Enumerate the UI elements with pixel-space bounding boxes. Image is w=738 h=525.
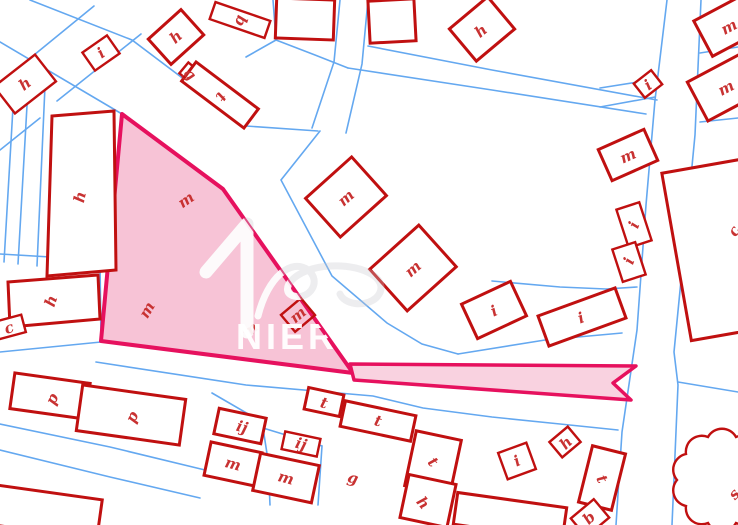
parcel-boundary-line: [0, 342, 101, 352]
parcel-boundary-line: [678, 382, 738, 392]
parcel-boundary-line: [368, 46, 657, 100]
tree-symbol: [673, 429, 738, 525]
building-outline: [453, 493, 566, 525]
parcel-boundary-line: [346, 0, 368, 133]
parcel-boundary-line: [37, 86, 45, 266]
parcel-boundary-line: [4, 90, 14, 262]
map-canvas[interactable]: h i h b g t h i m m m m m i i i i c h h …: [0, 0, 738, 525]
building-outline: [0, 485, 102, 525]
parcel-boundary-line: [0, 118, 40, 150]
building-outline: [368, 0, 416, 43]
watermark-text: NIERU: [236, 316, 368, 357]
building-outline: [275, 0, 334, 40]
parcel-boundary-line: [600, 82, 638, 88]
parcel-boundary-line: [18, 88, 28, 264]
highlight-parcels[interactable]: [101, 114, 636, 400]
building-outline: [662, 159, 738, 340]
parcel-label: g: [346, 468, 361, 488]
parcel-boundary-line: [600, 97, 655, 107]
highlight-parcel-strip[interactable]: [350, 364, 636, 400]
parcel-boundary-line: [276, 40, 348, 68]
